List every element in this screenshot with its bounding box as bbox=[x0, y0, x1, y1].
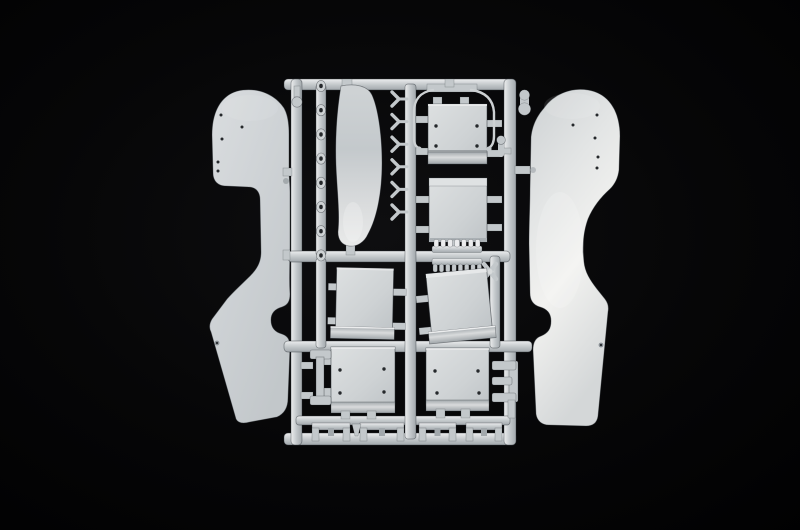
chain-link-hole bbox=[319, 108, 323, 112]
gate-left-upper bbox=[283, 168, 292, 176]
fender-hole bbox=[217, 170, 220, 173]
track-tooth bbox=[439, 264, 443, 272]
ball-lever-head bbox=[497, 136, 506, 145]
rivet bbox=[433, 369, 436, 372]
left-inner-runner bbox=[316, 258, 326, 348]
p2-stub bbox=[485, 196, 502, 203]
rivet bbox=[435, 391, 438, 394]
p6-bottom-ridge bbox=[426, 400, 489, 411]
p6-foot bbox=[436, 409, 445, 418]
rivet bbox=[434, 144, 437, 147]
track-tooth bbox=[462, 240, 467, 248]
capsule-clip-top bbox=[519, 90, 529, 100]
track-tooth bbox=[448, 240, 453, 248]
hull-panel-bottom-right bbox=[426, 348, 489, 418]
p3-face bbox=[335, 267, 393, 330]
right-fender-highlight bbox=[544, 93, 600, 119]
left-fender-gate-mark bbox=[283, 178, 289, 184]
fender-hole bbox=[594, 137, 597, 140]
chain-link-hole bbox=[319, 181, 323, 185]
chain-link-hole bbox=[319, 253, 323, 257]
right-fender-rivet-center bbox=[600, 344, 602, 346]
rivet bbox=[475, 144, 478, 147]
chain-link-hole bbox=[319, 156, 323, 160]
right-fender-gate-mark bbox=[530, 167, 536, 173]
p2-stub bbox=[416, 226, 430, 233]
wire-bar-stub bbox=[445, 79, 454, 87]
fender-hole bbox=[241, 126, 244, 129]
gate-left-mid bbox=[283, 250, 290, 260]
rivet bbox=[476, 369, 479, 372]
lever-stub bbox=[503, 148, 511, 154]
p4-top-edge bbox=[331, 347, 395, 349]
e-bracket-top-arm bbox=[492, 361, 516, 370]
fender-hole bbox=[596, 167, 599, 170]
teardrop-clip bbox=[292, 97, 302, 107]
rivet bbox=[338, 368, 341, 371]
p5-face bbox=[426, 268, 493, 335]
rivet bbox=[434, 124, 437, 127]
teardrop-stub bbox=[294, 86, 300, 97]
fender-hole bbox=[572, 124, 575, 127]
rivet bbox=[338, 391, 341, 394]
chain-link-hole bbox=[319, 132, 323, 136]
hatch-bottom-strip bbox=[428, 152, 487, 164]
e-bracket-mid-arm bbox=[492, 377, 512, 385]
track-tooth bbox=[475, 240, 480, 248]
gate-right-upper bbox=[515, 166, 530, 174]
fender-hole bbox=[221, 138, 224, 141]
p6-top-edge bbox=[426, 348, 489, 350]
p6-foot bbox=[461, 409, 470, 418]
track-tooth bbox=[433, 264, 437, 272]
wire-end-ball bbox=[486, 146, 491, 151]
hatch2-face bbox=[429, 178, 487, 242]
p2-stub bbox=[416, 196, 430, 203]
teeth-bar-bottom bbox=[432, 259, 482, 266]
x-clip-hub bbox=[487, 269, 492, 274]
photo-stage bbox=[0, 0, 800, 530]
i-bracket-stub bbox=[301, 362, 313, 369]
arch-highlight bbox=[343, 202, 363, 242]
sprue-photo bbox=[0, 0, 800, 530]
hatch-ridge bbox=[428, 150, 487, 152]
rivet bbox=[382, 367, 385, 370]
wire-end-ball bbox=[416, 146, 421, 151]
hatch-top-edge bbox=[428, 104, 487, 106]
p4-foot bbox=[341, 411, 350, 419]
chain-link-hole bbox=[319, 84, 323, 88]
rivet bbox=[382, 390, 385, 393]
p4-foot bbox=[367, 411, 376, 419]
hull-panel-bottom-left bbox=[324, 347, 395, 419]
track-tooth bbox=[455, 240, 460, 248]
left-fender-rivet-center bbox=[216, 342, 218, 344]
fender-hole bbox=[597, 156, 600, 159]
i-bracket-web bbox=[316, 357, 324, 398]
e-bracket-leg bbox=[508, 400, 515, 418]
p5-stub bbox=[416, 295, 430, 303]
p3-stub bbox=[392, 289, 406, 296]
chain-link-hole bbox=[319, 205, 323, 209]
chain-link-hole bbox=[319, 229, 323, 233]
hatch2-top-ridge bbox=[429, 178, 487, 186]
right-fender-specular bbox=[536, 192, 584, 308]
track-tooth bbox=[441, 240, 446, 248]
fender-hole bbox=[217, 161, 220, 164]
capsule-clip-bottom bbox=[518, 103, 530, 115]
rivet bbox=[477, 391, 480, 394]
track-tooth bbox=[446, 264, 450, 272]
track-tooth bbox=[434, 240, 439, 248]
p6-face bbox=[426, 348, 489, 405]
track-tooth bbox=[469, 240, 474, 248]
left-fender-highlight bbox=[222, 95, 278, 121]
p4-bottom-ridge bbox=[331, 402, 395, 413]
fender-hole bbox=[220, 114, 223, 117]
i-bracket-bottom-flange bbox=[310, 396, 331, 405]
p2-stub bbox=[485, 224, 502, 231]
p4-face bbox=[331, 347, 395, 405]
rivet bbox=[475, 124, 478, 127]
fender-hole bbox=[596, 114, 599, 117]
